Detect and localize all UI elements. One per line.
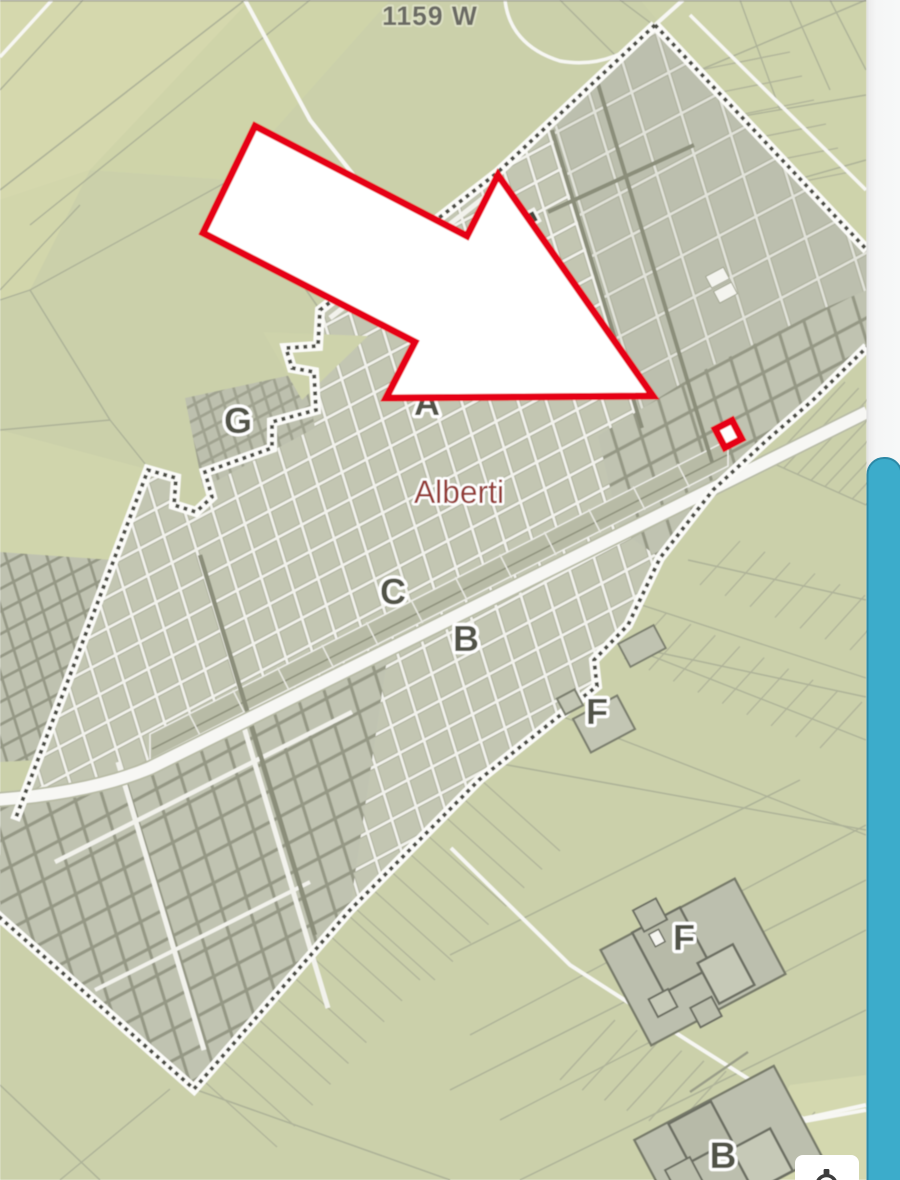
svg-text:C: C [380, 571, 406, 612]
svg-text:1159 W: 1159 W [382, 1, 478, 31]
svg-text:F: F [673, 917, 695, 958]
svg-text:Alberti: Alberti [414, 474, 504, 510]
svg-text:B: B [453, 618, 479, 659]
svg-text:G: G [224, 400, 252, 441]
svg-text:F: F [586, 691, 608, 732]
svg-text:B: B [710, 1135, 737, 1176]
